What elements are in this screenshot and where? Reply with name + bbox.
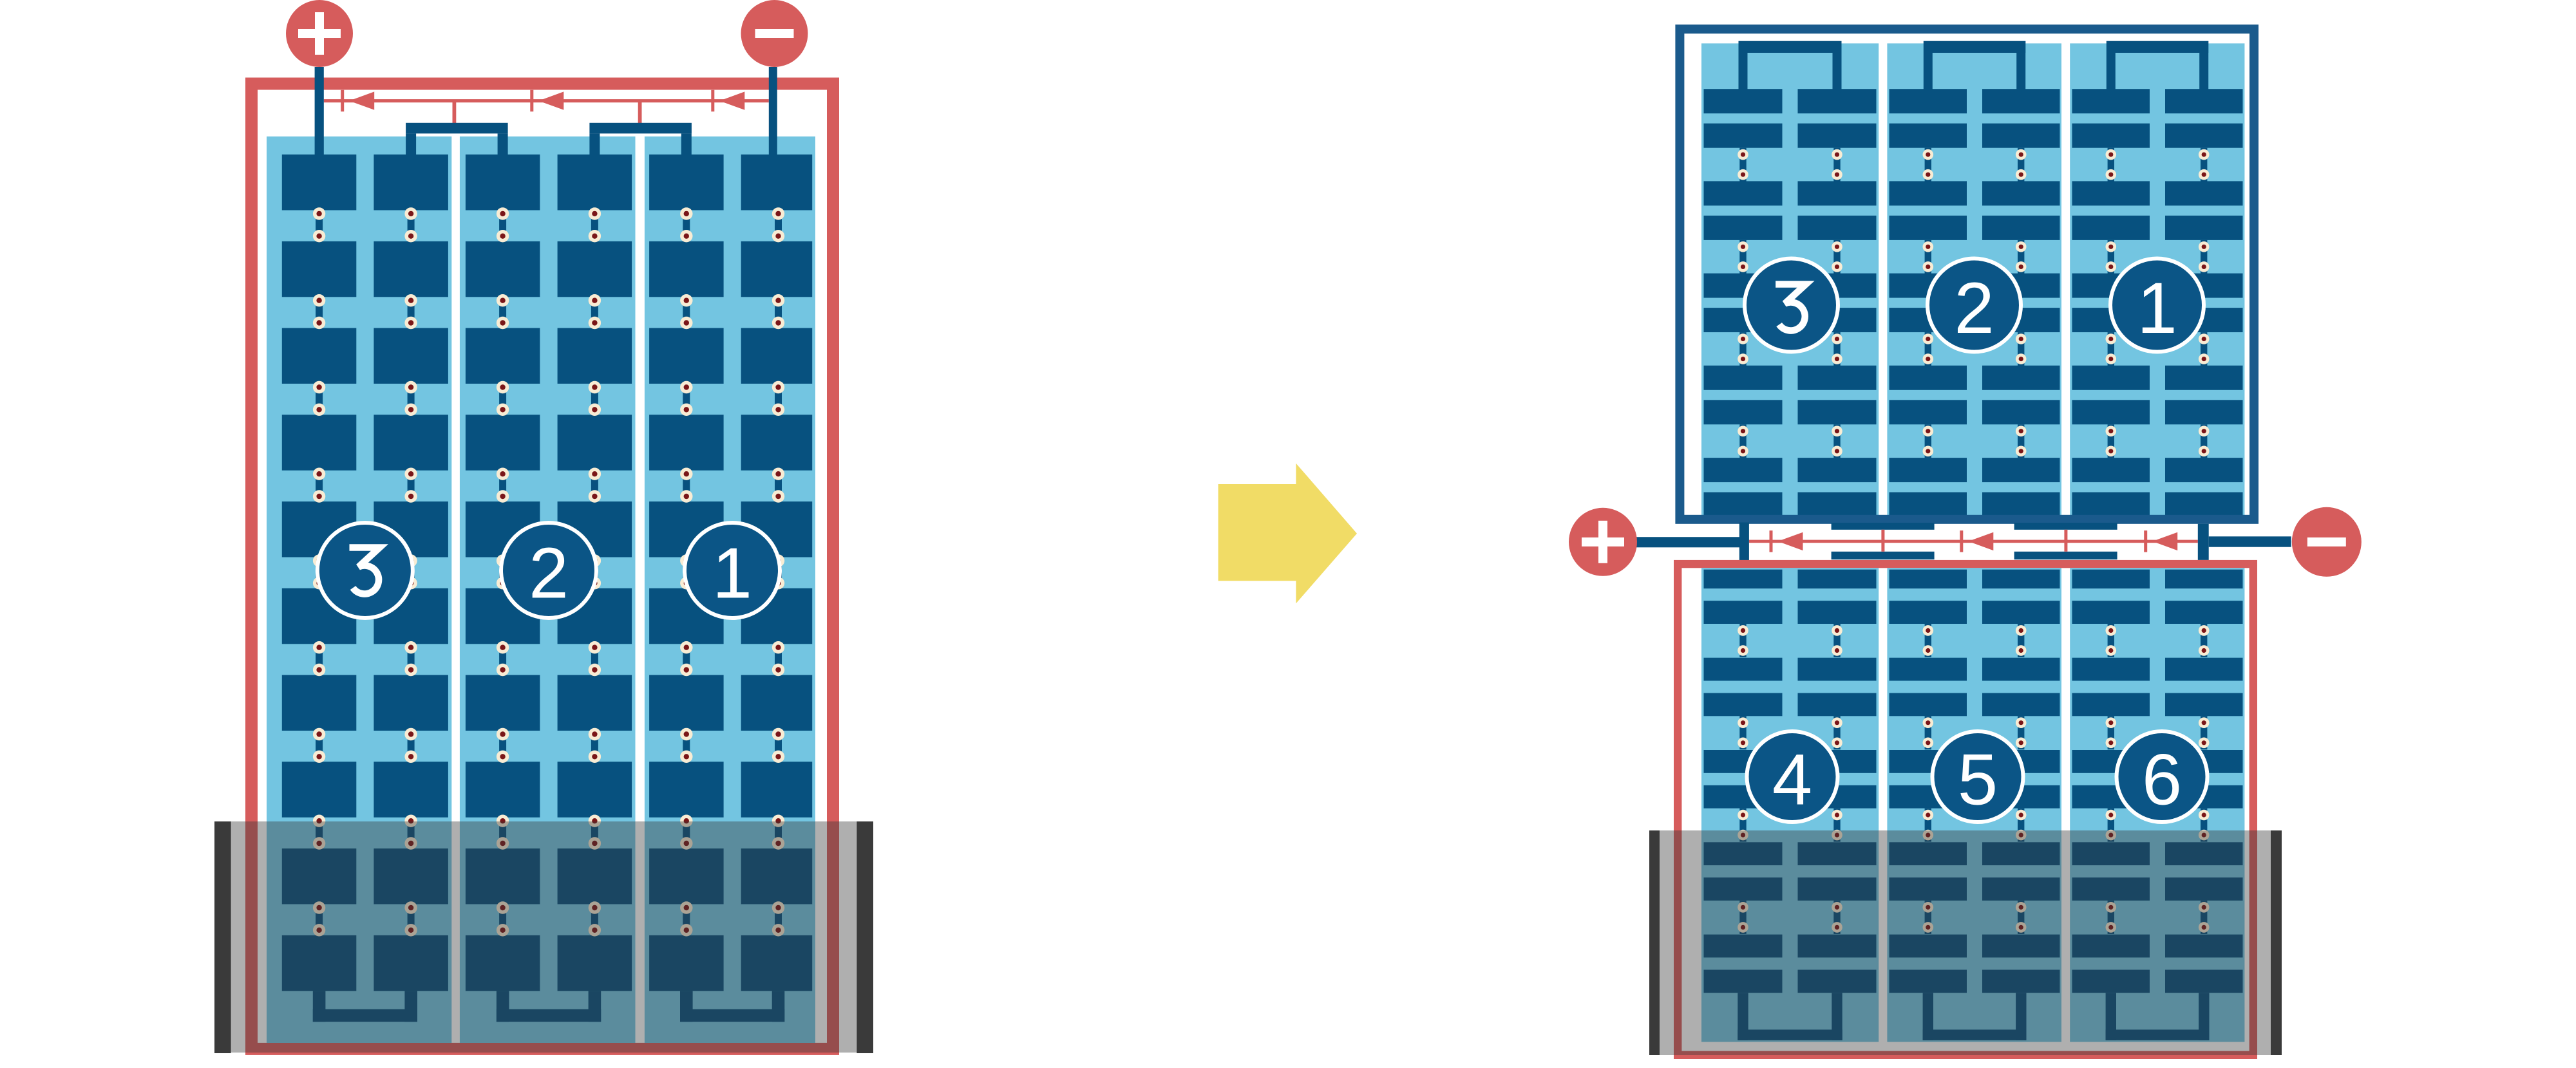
svg-text:2: 2 xyxy=(529,534,569,614)
svg-text:5: 5 xyxy=(1958,740,1998,820)
svg-text:1: 1 xyxy=(2137,268,2177,348)
svg-text:1: 1 xyxy=(712,534,752,614)
svg-text:4: 4 xyxy=(1772,740,1812,820)
svg-text:6: 6 xyxy=(2142,740,2182,820)
svg-text:2: 2 xyxy=(1954,268,1994,348)
